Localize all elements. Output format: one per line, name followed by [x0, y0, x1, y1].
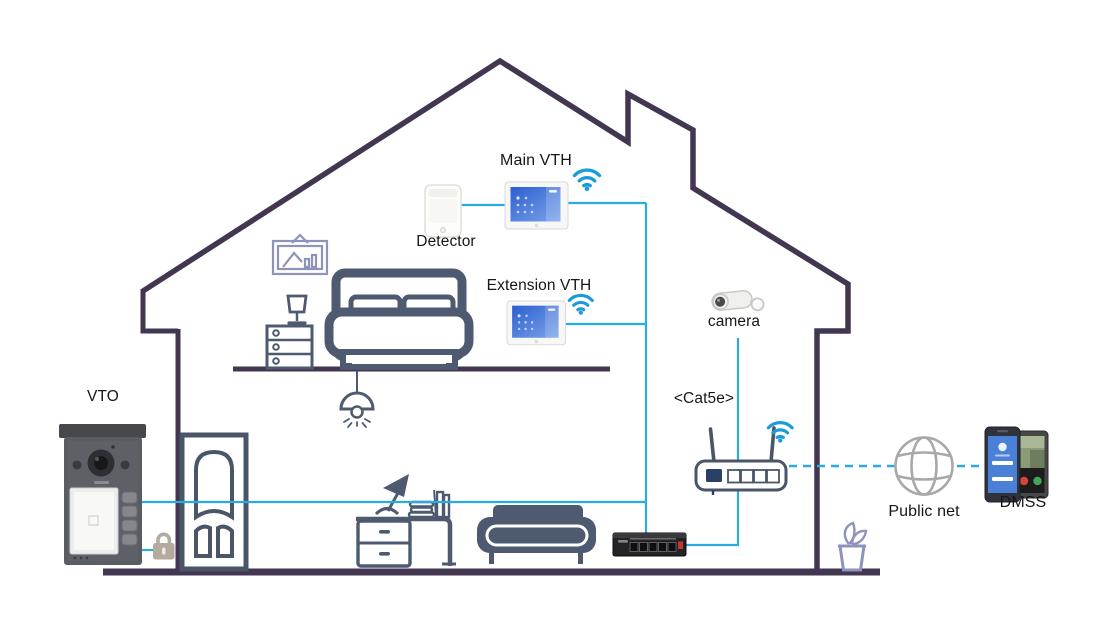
dmss-phone-icon: [985, 427, 1048, 502]
main-vth-label: Main VTH: [466, 152, 606, 170]
detector-device: [425, 185, 461, 237]
lock-icon: [153, 534, 175, 559]
sofa: [477, 505, 596, 564]
dmss-label: DMSS: [953, 494, 1093, 512]
switch-device: [613, 533, 686, 556]
main-vth-device: [505, 182, 568, 229]
wifi-icon-extension-vth: [569, 295, 592, 314]
network-lines: [140, 203, 984, 550]
table-lamp-icon: [288, 296, 306, 323]
camera-device: [711, 289, 764, 315]
diagram-canvas: [0, 0, 1107, 638]
router-device: [696, 428, 786, 495]
desk: [356, 519, 456, 566]
diagram-page: VTO Main VTH Detector Extension VTH came…: [0, 0, 1107, 638]
cat5e-label: <Cat5e>: [634, 390, 774, 407]
plant-icon: [838, 523, 866, 570]
detector-label: Detector: [376, 233, 516, 250]
bed: [329, 273, 469, 370]
extension-vth-label: Extension VTH: [469, 277, 609, 294]
books: [409, 490, 449, 517]
extension-vth-device: [507, 301, 566, 345]
vto-device: [59, 424, 146, 565]
ceiling-lamp-icon: [341, 371, 373, 427]
nightstand: [267, 326, 312, 368]
wifi-icon-main-vth: [575, 170, 600, 191]
globe-icon: [896, 438, 953, 495]
vto-label: VTO: [33, 388, 173, 405]
picture-frame: [273, 235, 327, 274]
desk-lamp-icon: [376, 474, 409, 514]
camera-label: camera: [664, 313, 804, 330]
